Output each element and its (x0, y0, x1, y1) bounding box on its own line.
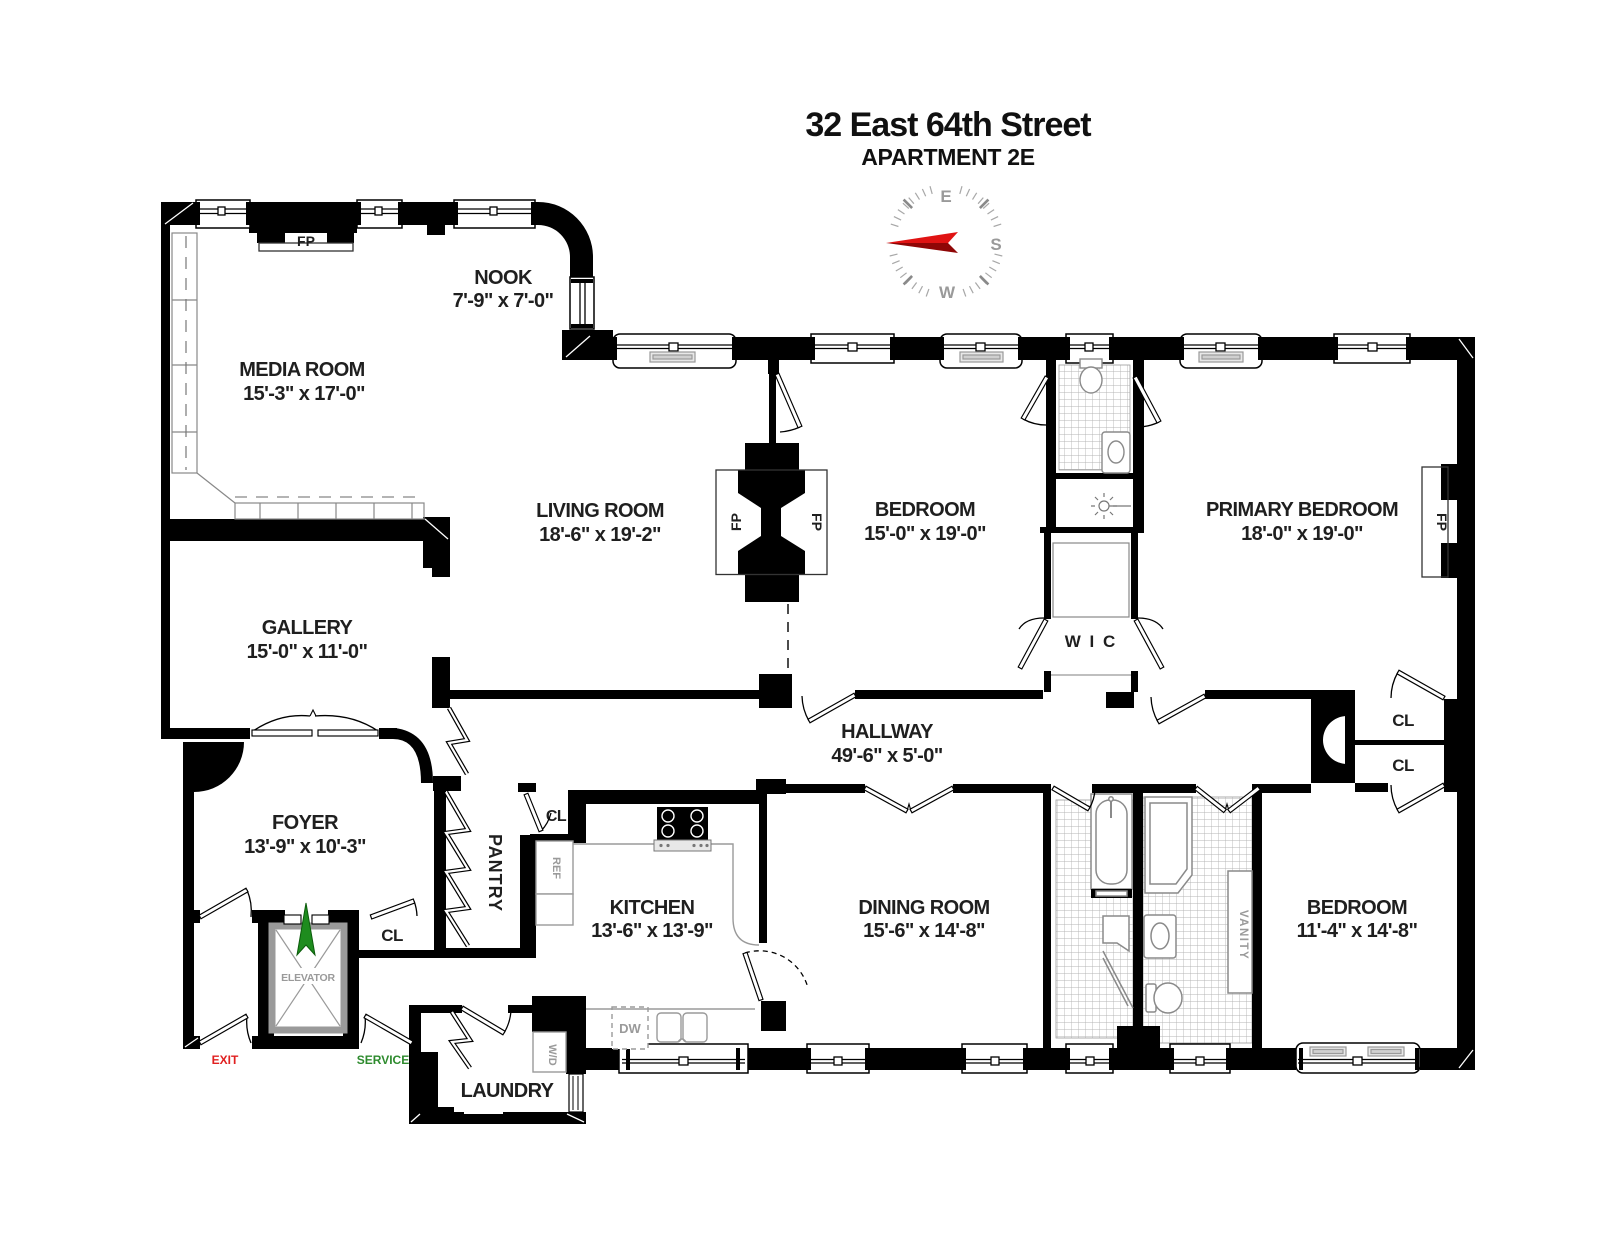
svg-text:SERVICE: SERVICE (357, 1053, 409, 1067)
svg-text:REF: REF (550, 857, 562, 879)
svg-text:15'-0" x 11'-0": 15'-0" x 11'-0" (247, 641, 368, 663)
svg-text:ELEVATOR: ELEVATOR (281, 972, 335, 984)
svg-text:13'-6" x 13'-9": 13'-6" x 13'-9" (591, 920, 713, 942)
svg-text:15'-0" x 19'-0": 15'-0" x 19'-0" (864, 523, 986, 545)
svg-text:FP: FP (809, 513, 825, 531)
svg-text:W I C: W I C (1065, 632, 1118, 651)
svg-text:CL: CL (1392, 756, 1414, 775)
svg-text:15'-6" x 14'-8": 15'-6" x 14'-8" (863, 920, 985, 942)
svg-text:18'-6" x 19'-2": 18'-6" x 19'-2" (539, 524, 661, 546)
svg-text:HALLWAY: HALLWAY (841, 721, 934, 743)
svg-text:FOYER: FOYER (272, 812, 339, 834)
svg-text:PANTRY: PANTRY (485, 834, 505, 912)
svg-text:PRIMARY BEDROOM: PRIMARY BEDROOM (1206, 499, 1398, 521)
svg-text:GALLERY: GALLERY (262, 617, 354, 639)
svg-text:LIVING ROOM: LIVING ROOM (536, 500, 664, 522)
svg-text:W/D: W/D (546, 1044, 558, 1065)
svg-text:VANITY: VANITY (1237, 910, 1249, 960)
svg-text:S: S (990, 235, 1001, 254)
svg-text:DW: DW (619, 1021, 641, 1036)
svg-text:KITCHEN: KITCHEN (610, 897, 695, 919)
svg-text:11'-4" x 14'-8": 11'-4" x 14'-8" (1297, 920, 1418, 942)
svg-text:DINING ROOM: DINING ROOM (858, 897, 989, 919)
svg-text:BEDROOM: BEDROOM (875, 499, 975, 521)
svg-text:18'-0" x 19'-0": 18'-0" x 19'-0" (1241, 523, 1363, 545)
svg-text:FP: FP (297, 233, 315, 249)
svg-text:13'-9" x 10'-3": 13'-9" x 10'-3" (244, 836, 366, 858)
svg-text:7'-9" x 7'-0": 7'-9" x 7'-0" (453, 290, 554, 312)
svg-text:CL: CL (546, 808, 567, 825)
svg-text:32 East 64th Street: 32 East 64th Street (805, 106, 1091, 144)
svg-text:MEDIA ROOM: MEDIA ROOM (239, 359, 364, 381)
svg-text:BEDROOM: BEDROOM (1307, 897, 1407, 919)
svg-text:APARTMENT 2E: APARTMENT 2E (861, 144, 1035, 170)
svg-text:CL: CL (381, 926, 403, 945)
svg-text:49'-6" x 5'-0": 49'-6" x 5'-0" (831, 745, 942, 767)
svg-text:CL: CL (1392, 711, 1414, 730)
svg-text:15'-3" x 17'-0": 15'-3" x 17'-0" (243, 383, 365, 405)
svg-text:E: E (940, 187, 951, 206)
svg-text:EXIT: EXIT (212, 1053, 239, 1067)
svg-text:FP: FP (1434, 513, 1450, 531)
svg-text:FP: FP (728, 513, 744, 531)
svg-text:NOOK: NOOK (474, 267, 533, 289)
svg-text:LAUNDRY: LAUNDRY (461, 1080, 555, 1102)
svg-text:W: W (939, 283, 956, 302)
